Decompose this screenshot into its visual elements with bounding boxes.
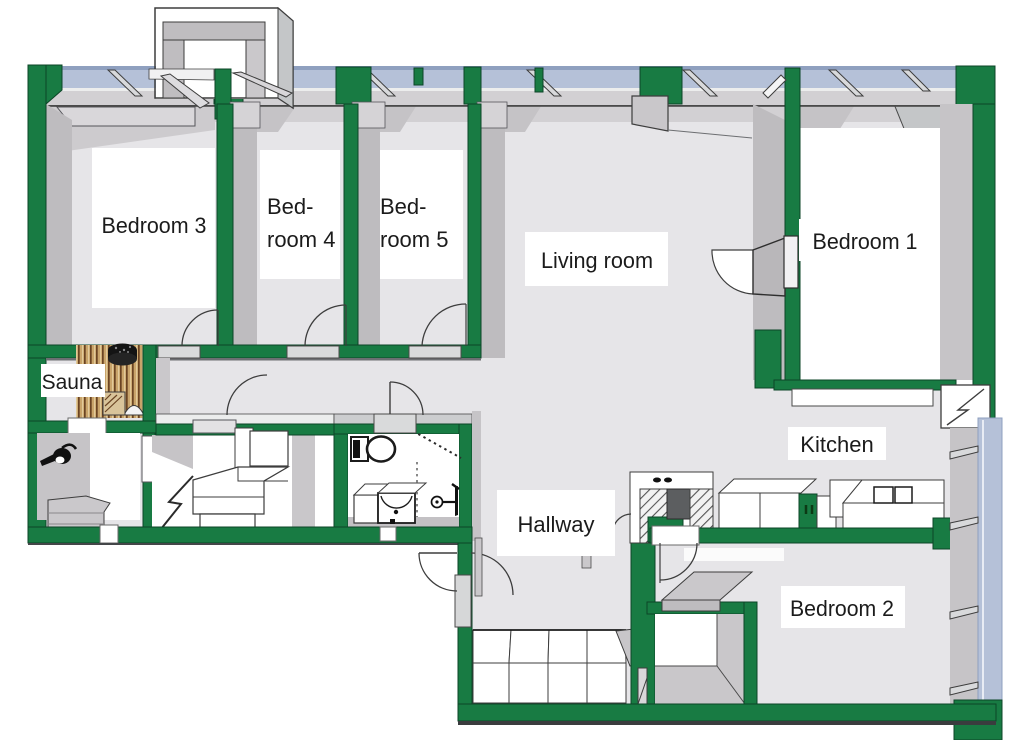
svg-text:Hallway: Hallway: [517, 512, 594, 537]
svg-text:Kitchen: Kitchen: [800, 432, 873, 457]
svg-text:Bedroom 3: Bedroom 3: [102, 213, 207, 238]
svg-text:room 5: room 5: [380, 227, 448, 252]
svg-text:Sauna: Sauna: [42, 371, 103, 394]
svg-text:Bedroom 2: Bedroom 2: [790, 596, 894, 621]
svg-text:Living room: Living room: [541, 248, 653, 273]
svg-text:room 4: room 4: [267, 227, 335, 252]
svg-text:Bed-: Bed-: [380, 194, 426, 219]
svg-text:Bedroom 1: Bedroom 1: [813, 229, 918, 254]
svg-text:Bed-: Bed-: [267, 194, 313, 219]
